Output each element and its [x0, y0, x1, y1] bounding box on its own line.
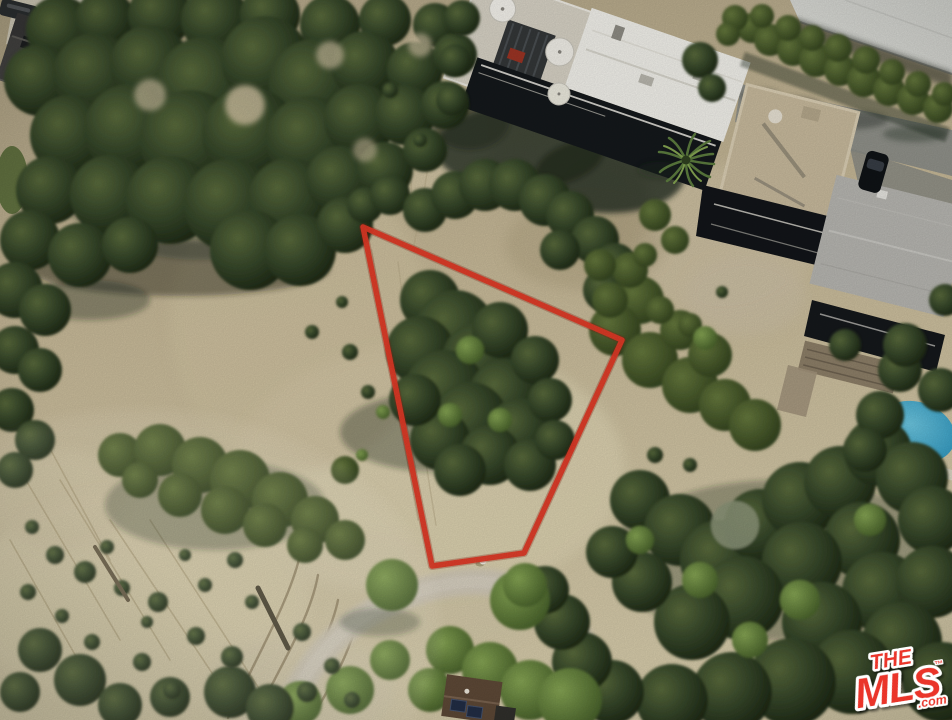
aerial-photo: THE MLS ™ .com: [0, 0, 952, 720]
film-grain: [0, 0, 952, 720]
mls-logo-tm: ™: [933, 659, 943, 670]
aerial-photo-canvas: THE MLS ™ .com: [0, 0, 952, 720]
